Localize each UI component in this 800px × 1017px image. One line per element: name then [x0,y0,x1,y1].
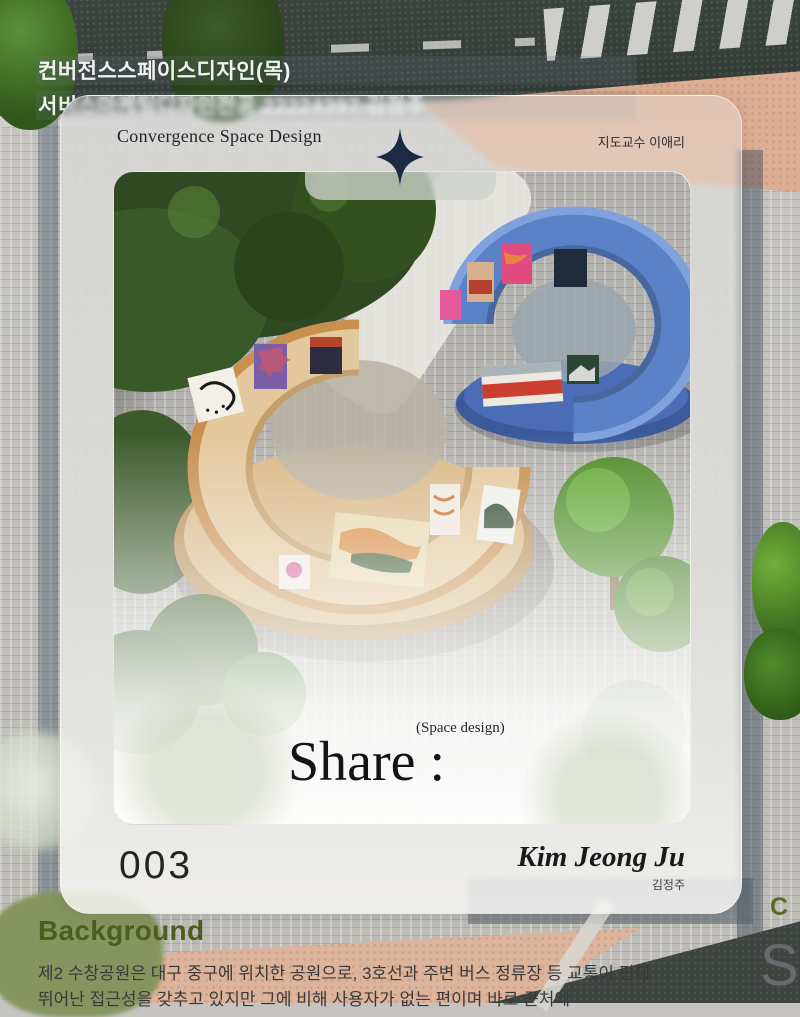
advisor-label: 지도교수 이애리 [598,132,685,151]
author-name-english: Kim Jeong Ju [517,841,685,874]
tree [752,522,800,644]
page-number: 003 [119,844,193,888]
course-title: 컨버전스스페이스디자인(목) [38,55,291,85]
share-label: Share : [288,730,445,794]
fog-overlay [114,172,690,824]
clipped-heading-fragment: C [770,893,788,922]
clipped-letter-fragment: S [760,932,799,999]
author-name-korean: 김정주 [652,876,685,893]
section-body-line1: 제2 수창공원은 대구 중구에 위치한 공원으로, 3호선과 주변 버스 정류장… [38,959,650,984]
section-heading: Background [38,915,204,947]
presentation-card: Convergence Space Design 지도교수 이애리 [60,95,742,914]
section-body-line2: 뛰어난 접근성을 갖추고 있지만 그에 비해 사용자가 없는 편이며 바로 근처… [38,985,570,1010]
card-title: Convergence Space Design [117,126,322,147]
sparkle-icon [376,128,424,186]
model-photo: (Space design) Share : [113,171,691,825]
